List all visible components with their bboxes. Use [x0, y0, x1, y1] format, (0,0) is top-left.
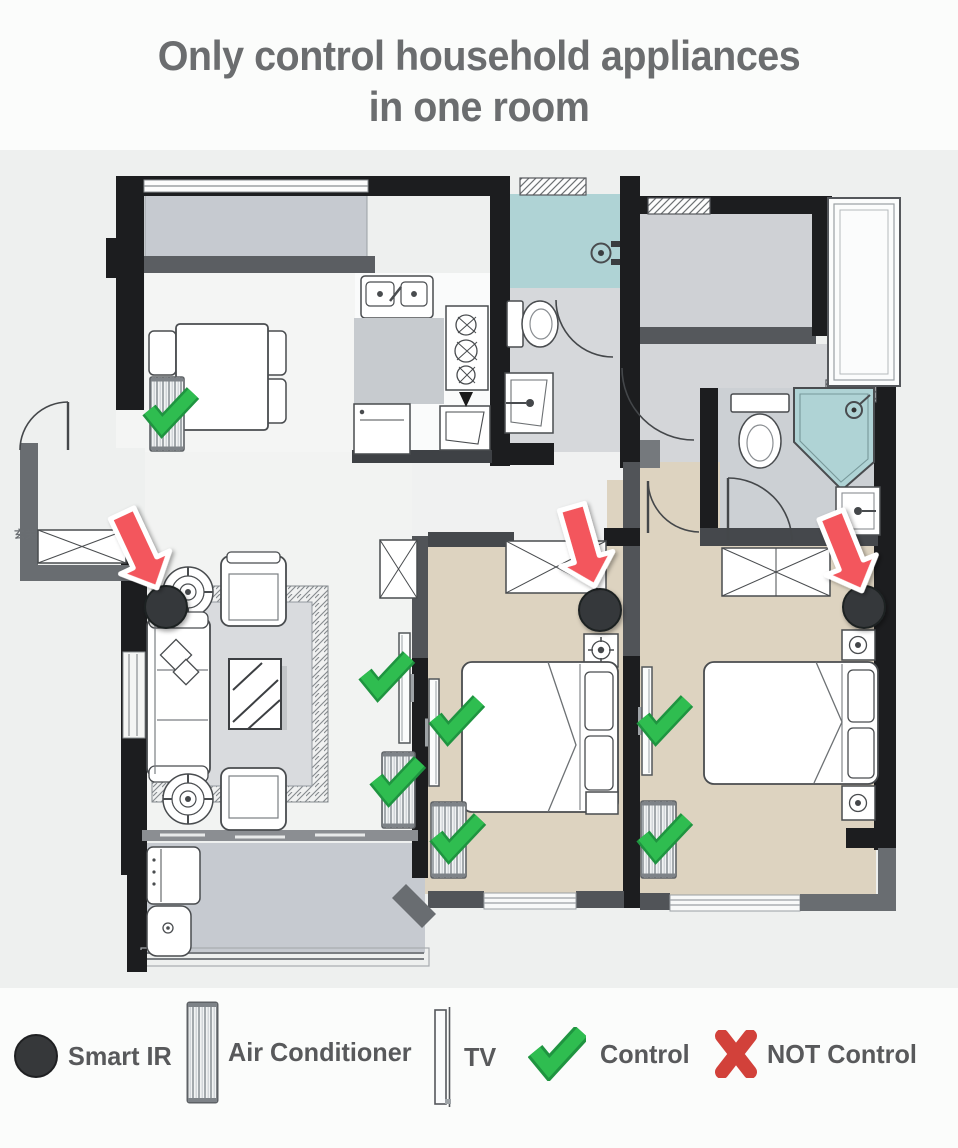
- storage-room-floor: [640, 214, 814, 329]
- coffee-table: [229, 659, 287, 730]
- nightstand-bedroom-1-low: [586, 792, 618, 814]
- wardrobe-bedroom-2: [722, 548, 830, 596]
- infographic: 玄关 Only control household appliances in …: [0, 0, 958, 1148]
- nightstand-bedroom-2-top: [842, 630, 875, 660]
- kitchen-sink: [361, 276, 433, 318]
- window-hatch: [520, 178, 586, 195]
- title-line-2: in one room: [29, 81, 930, 132]
- side-table-bottom: [163, 774, 213, 824]
- page-title: Only control household appliances in one…: [29, 30, 930, 132]
- bed-bedroom-1: [462, 662, 618, 812]
- laundry-basin: [147, 906, 191, 956]
- armchair-bottom: [221, 768, 286, 830]
- armchair-top: [221, 552, 286, 626]
- smart-ir-bedroom-1: [579, 589, 621, 631]
- toilet-1: [507, 301, 558, 347]
- bed-bedroom-2: [704, 662, 878, 784]
- entry-label: 玄关: [14, 527, 36, 541]
- window-hatch: [648, 198, 710, 214]
- stove: [446, 306, 488, 390]
- nightstand-bedroom-2-bottom: [842, 786, 875, 820]
- floor-plan: 玄关: [0, 0, 958, 1148]
- smart-ir-bedroom-2: [843, 586, 885, 628]
- kitchen-cabinet: [354, 404, 410, 454]
- entry-cabinet: [38, 530, 126, 563]
- window-sill: [141, 256, 375, 273]
- balcony-top-floor: [145, 192, 367, 258]
- kitchen-counter: [354, 318, 444, 404]
- sofa: [147, 612, 210, 782]
- sink-1: [505, 373, 553, 433]
- washing-machine: [147, 847, 200, 904]
- title-line-1: Only control household appliances: [29, 30, 930, 81]
- shoe-cabinet-living: [380, 540, 417, 598]
- bathroom-1-floor: [510, 194, 622, 288]
- smart-ir-living-room: [145, 586, 187, 628]
